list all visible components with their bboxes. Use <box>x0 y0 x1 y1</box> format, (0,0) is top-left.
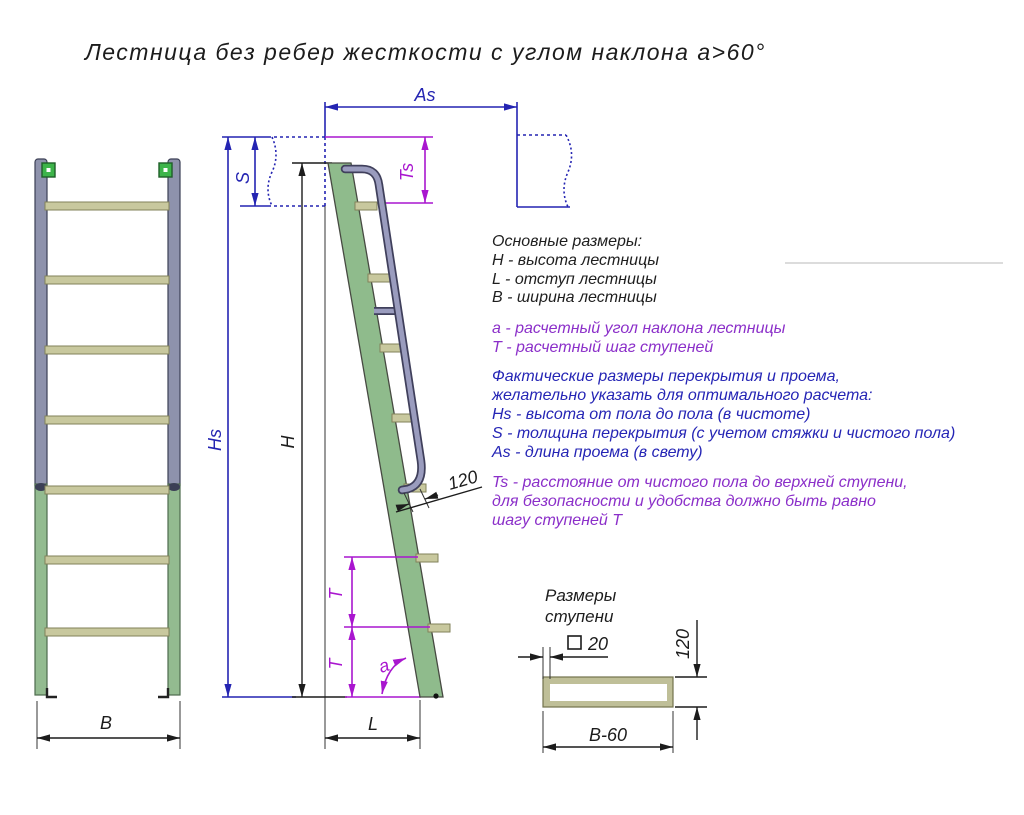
note-line: Фактические размеры перекрытия и проема, <box>492 368 840 385</box>
slab-break-edge <box>268 137 276 206</box>
note-line: B - ширина лестницы <box>492 289 657 306</box>
dimension-ts-label: Ts <box>397 163 417 181</box>
stile-right-green <box>168 484 180 695</box>
notes-block: Основные размеры: H - высота лестницы L … <box>491 233 955 529</box>
front-view: B <box>35 159 180 749</box>
stile-left-green <box>35 484 47 695</box>
foot-mark-right <box>158 688 168 697</box>
dimension-as: As <box>325 85 517 137</box>
foot-point <box>433 693 438 698</box>
dimension-h-label: H <box>278 435 298 449</box>
wall-bracket-left <box>42 163 55 177</box>
step-tube-inner <box>550 684 667 701</box>
floor-slab-right <box>517 135 572 207</box>
note-line: H - высота лестницы <box>492 252 659 269</box>
dimension-angle-label: a <box>376 655 392 677</box>
dimension-angle: a <box>376 655 406 694</box>
step-peg <box>368 274 390 282</box>
drawing-page: Лестница без ребер жесткости с углом нак… <box>0 0 1024 815</box>
dimension-t-upper-label: T <box>326 587 346 600</box>
step-peg <box>428 624 450 632</box>
note-line: Основные размеры: <box>492 233 642 250</box>
rung <box>45 416 169 424</box>
slab-break-edge <box>564 135 572 207</box>
note-line: S - толщина перекрытия (с учетом стяжки … <box>492 425 955 442</box>
step-section-title: ступени <box>545 607 614 626</box>
dimension-hs-label: Hs <box>205 429 225 451</box>
dimension-t-lower: T <box>326 627 352 697</box>
stile-right-gray <box>168 159 180 489</box>
dimension-step-width-label: B-60 <box>589 725 627 745</box>
dimension-l: L <box>325 700 420 749</box>
technical-drawing: Лестница без ребер жесткости с углом нак… <box>0 0 1024 815</box>
note-line: Hs - высота от пола до пола (в чистоте) <box>492 406 811 423</box>
rung <box>45 486 169 494</box>
dimension-hs: Hs <box>205 137 228 697</box>
rung <box>45 276 169 284</box>
foot-mark-left <box>47 688 57 697</box>
dimension-step-width: B-60 <box>543 711 673 753</box>
step-peg <box>380 344 402 352</box>
dimension-step-height: 120 <box>673 620 707 740</box>
dimension-l-label: L <box>368 714 378 734</box>
step-peg <box>416 554 438 562</box>
dimension-step-height-label: 120 <box>673 629 693 659</box>
note-line: Ts - расстояние от чистого пола до верхн… <box>492 474 908 491</box>
dimension-b-label: B <box>100 713 112 733</box>
note-line: желательно указать для оптимального расч… <box>491 387 872 404</box>
wall-bracket-right <box>159 163 172 177</box>
step-section: Размеры ступени 20 120 B-60 <box>518 586 707 753</box>
dimension-as-label: As <box>413 85 435 105</box>
dimension-b: B <box>37 701 180 749</box>
rung <box>45 202 169 210</box>
square-symbol <box>568 636 581 649</box>
rung <box>45 628 169 636</box>
dimension-s-label: S <box>233 172 253 184</box>
rung <box>45 346 169 354</box>
floor-slab-left <box>222 137 325 206</box>
page-title: Лестница без ребер жесткости с углом нак… <box>83 39 766 65</box>
note-line: шагу ступеней T <box>492 512 623 529</box>
note-line: As - длина проема (в свету) <box>491 444 703 461</box>
rung <box>45 556 169 564</box>
note-line: a - расчетный угол наклона лестницы <box>492 320 786 337</box>
note-line: для безопасности и удобства должно быть … <box>492 493 876 510</box>
dimension-s: S <box>233 137 255 206</box>
step-section-title: Размеры <box>545 586 617 605</box>
dimension-t-lower-label: T <box>326 657 346 670</box>
dimension-square20: 20 <box>518 634 608 679</box>
dimension-h: H <box>278 163 332 697</box>
step-peg <box>355 202 377 210</box>
note-line: T - расчетный шаг ступеней <box>492 339 713 356</box>
note-line: L - отступ лестницы <box>492 271 657 288</box>
rail-end-cap <box>168 483 180 491</box>
dimension-square20-label: 20 <box>587 634 608 654</box>
